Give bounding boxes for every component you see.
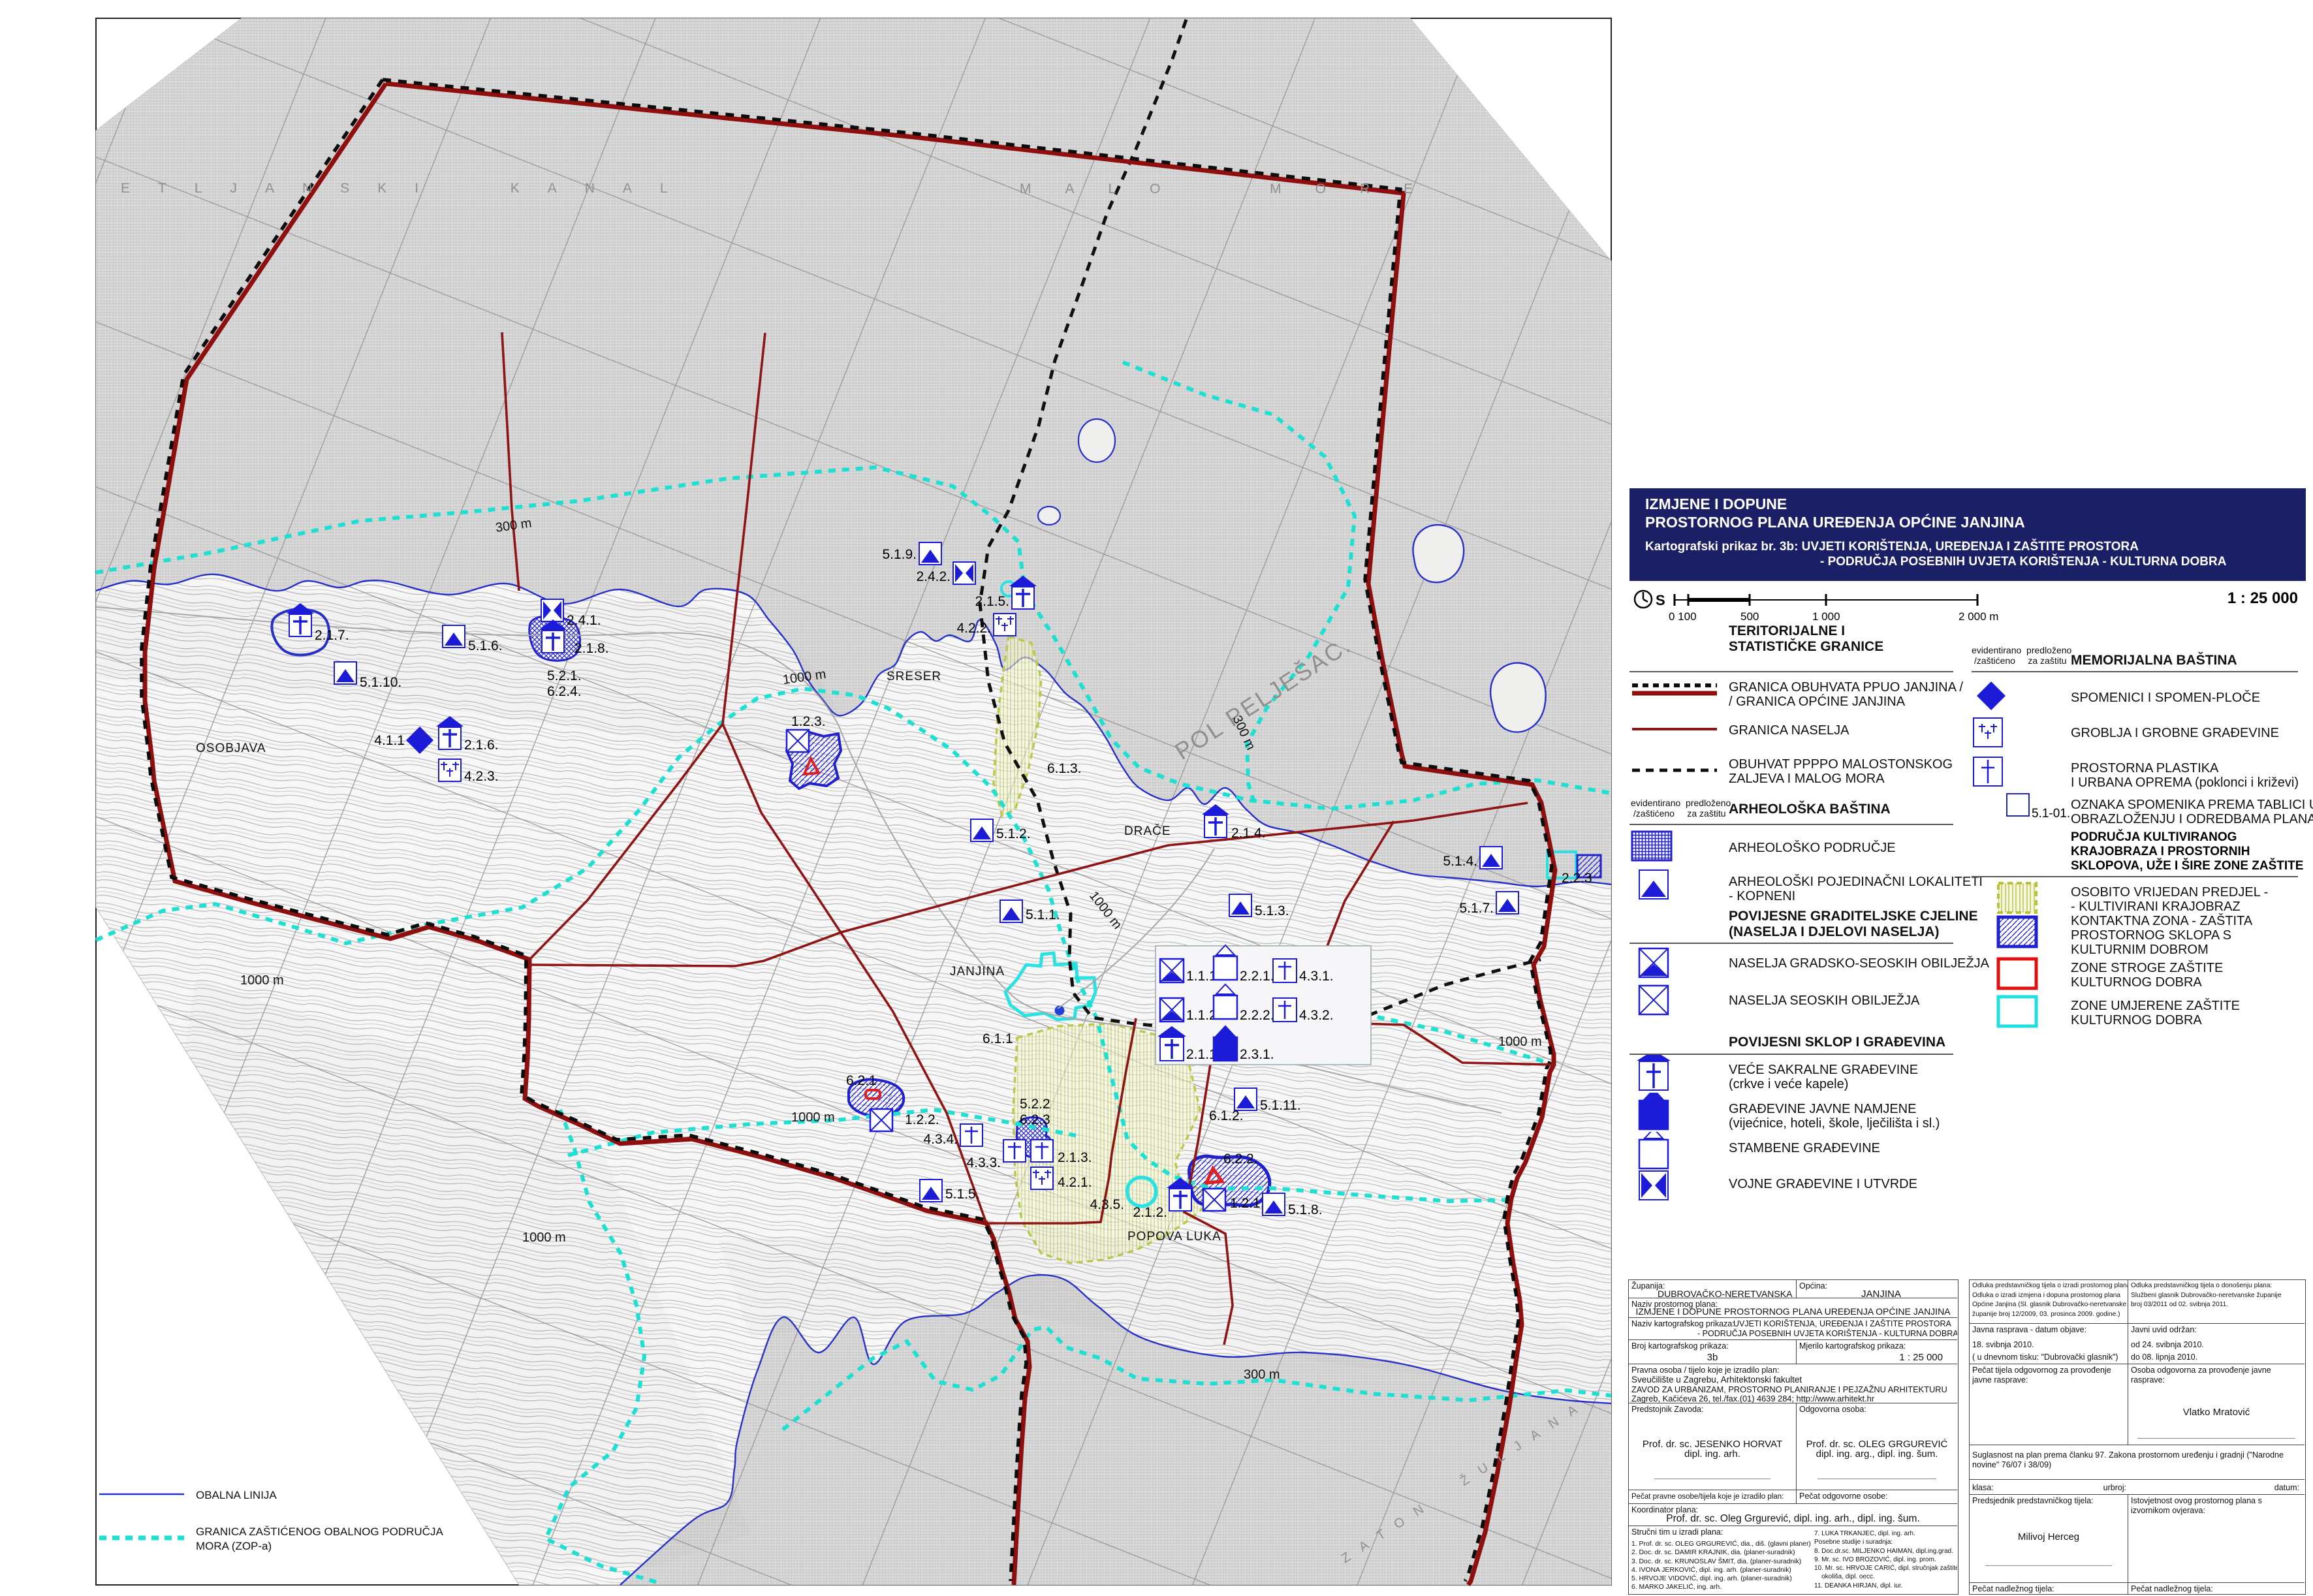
svg-text:2.2.1.: 2.2.1. xyxy=(1240,969,1274,984)
svg-text:300 m: 300 m xyxy=(1244,1368,1280,1382)
svg-text:MORA (ZOP-a): MORA (ZOP-a) xyxy=(196,1540,272,1552)
svg-text:4.2.2.: 4.2.2. xyxy=(956,621,991,636)
svg-text:2.1.4.: 2.1.4. xyxy=(1231,826,1266,841)
svg-text:2 000 m: 2 000 m xyxy=(1959,610,1998,623)
svg-text:POPOVA LUKA: POPOVA LUKA xyxy=(1127,1230,1221,1244)
svg-text:6.2.1: 6.2.1 xyxy=(846,1073,877,1088)
svg-text:1.2.2.: 1.2.2. xyxy=(905,1112,939,1127)
svg-text:1000 m: 1000 m xyxy=(240,973,284,988)
svg-text:5.1.3.: 5.1.3. xyxy=(1255,903,1289,918)
svg-text:GRANICA ZAŠTIĆENOG OBALNOG POD: GRANICA ZAŠTIĆENOG OBALNOG PODRUČJA xyxy=(196,1526,443,1538)
svg-text:6.2.2.: 6.2.2. xyxy=(1223,1151,1258,1166)
svg-text:6.1.1: 6.1.1 xyxy=(983,1031,1013,1046)
svg-text:2.1.2.: 2.1.2. xyxy=(1133,1205,1167,1220)
svg-text:2.2.2.: 2.2.2. xyxy=(1240,1008,1274,1023)
svg-text:500: 500 xyxy=(1740,610,1759,623)
svg-text:1.2.3.: 1.2.3. xyxy=(791,714,826,729)
svg-text:JANJINA: JANJINA xyxy=(950,965,1005,978)
svg-text:1000 m: 1000 m xyxy=(522,1230,566,1245)
svg-text:2.1.5.: 2.1.5. xyxy=(975,594,1009,609)
svg-text:5.1.7.: 5.1.7. xyxy=(1459,901,1494,916)
svg-text:2.1.3.: 2.1.3. xyxy=(1058,1150,1092,1165)
svg-text:4.1.1: 4.1.1 xyxy=(374,733,405,748)
svg-text:6.1.3.: 6.1.3. xyxy=(1047,761,1082,776)
svg-text:5.1.1.: 5.1.1. xyxy=(1026,907,1060,922)
svg-text:5.1.8.: 5.1.8. xyxy=(1288,1202,1323,1217)
svg-text:5.1.2.: 5.1.2. xyxy=(996,826,1031,841)
svg-text:1 000: 1 000 xyxy=(1812,610,1840,623)
svg-text:5.1.10.: 5.1.10. xyxy=(360,675,401,690)
svg-text:4.3.2.: 4.3.2. xyxy=(1299,1008,1334,1023)
svg-text:6.2.4.: 6.2.4. xyxy=(547,684,582,699)
svg-text:2.1.7.: 2.1.7. xyxy=(315,628,349,643)
svg-text:4.3.1.: 4.3.1. xyxy=(1299,969,1334,984)
svg-text:4.3.4.: 4.3.4. xyxy=(923,1132,958,1147)
svg-text:DRAČE: DRAČE xyxy=(1124,824,1171,838)
svg-text:5.2.2: 5.2.2 xyxy=(1020,1097,1050,1112)
svg-text:4.2.1.: 4.2.1. xyxy=(1058,1175,1092,1190)
svg-text:SRESER: SRESER xyxy=(887,670,941,683)
svg-text:5.1.4.: 5.1.4. xyxy=(1443,854,1477,869)
svg-text:5.1.6.: 5.1.6. xyxy=(468,638,503,653)
svg-text:4.2.3.: 4.2.3. xyxy=(464,769,499,784)
svg-text:4.3.5.: 4.3.5. xyxy=(1090,1197,1124,1212)
svg-text:OBALNA LINIJA: OBALNA LINIJA xyxy=(196,1489,277,1501)
svg-text:2.4.1.: 2.4.1. xyxy=(567,613,601,628)
svg-text:2.2.3: 2.2.3 xyxy=(1562,871,1592,886)
svg-text:5.1.11.: 5.1.11. xyxy=(1260,1098,1301,1113)
svg-text:MALO MORE: MALO MORE xyxy=(1020,181,1447,196)
svg-text:6.1.2.: 6.1.2. xyxy=(1209,1108,1244,1123)
svg-text:5.1.9.: 5.1.9. xyxy=(882,547,917,562)
svg-text:1000 m: 1000 m xyxy=(1498,1035,1542,1049)
svg-text:0 100: 0 100 xyxy=(1669,610,1697,623)
svg-text:6.2.3: 6.2.3 xyxy=(1020,1112,1050,1127)
svg-text:5.1.5.: 5.1.5. xyxy=(945,1187,980,1202)
svg-text:1.2.1.: 1.2.1. xyxy=(1230,1196,1265,1211)
svg-text:ETLJANSKI KANAL: ETLJANSKI KANAL xyxy=(121,181,696,196)
svg-text:2.4.2.: 2.4.2. xyxy=(916,569,951,584)
svg-text:2.1.6.: 2.1.6. xyxy=(464,738,499,753)
svg-text:4.3.3.: 4.3.3. xyxy=(966,1155,1001,1170)
svg-text:OSOBJAVA: OSOBJAVA xyxy=(196,742,266,755)
svg-text:1000 m: 1000 m xyxy=(791,1110,835,1125)
svg-text:5.1-01.: 5.1-01. xyxy=(2032,807,2070,821)
svg-text:2.1.8.: 2.1.8. xyxy=(574,641,609,656)
svg-text:5.2.1.: 5.2.1. xyxy=(547,668,582,683)
svg-text:2.3.1.: 2.3.1. xyxy=(1240,1047,1274,1062)
